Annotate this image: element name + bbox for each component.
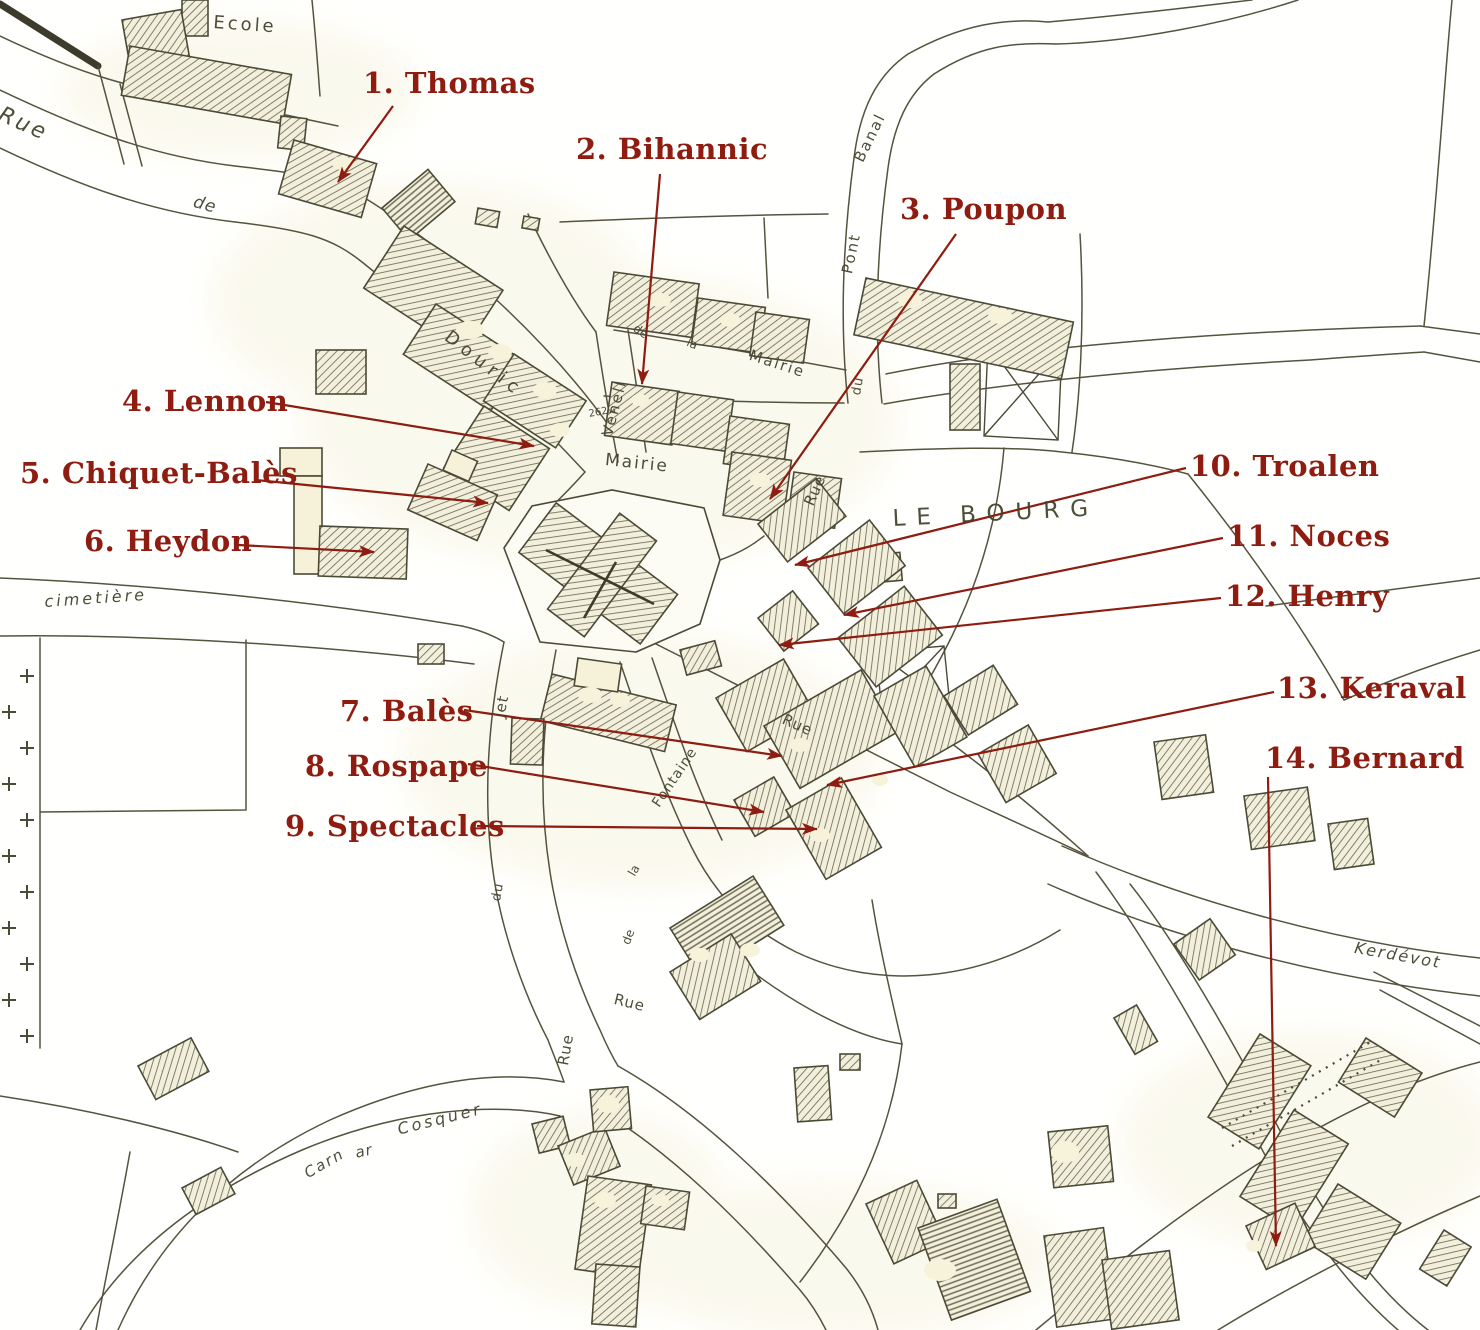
annotation-arrow-3 bbox=[770, 234, 956, 499]
annotation-arrow-13 bbox=[827, 692, 1274, 785]
annotation-arrow-6 bbox=[238, 545, 374, 552]
annotation-arrow-2 bbox=[642, 174, 660, 384]
annotation-arrows bbox=[0, 0, 1480, 1330]
annotation-arrow-4 bbox=[266, 402, 534, 446]
annotation-arrow-12 bbox=[779, 598, 1221, 645]
annotation-arrow-5 bbox=[256, 480, 488, 503]
annotation-arrow-1 bbox=[338, 106, 393, 182]
annotation-arrow-8 bbox=[468, 764, 764, 812]
annotation-arrow-7 bbox=[464, 710, 782, 756]
annotation-arrow-14 bbox=[1268, 777, 1276, 1246]
annotation-arrow-9 bbox=[477, 826, 817, 829]
annotation-arrow-10 bbox=[795, 468, 1186, 565]
map-stage: EcoleRuedeDouricVenelldelaMairieMairie26… bbox=[0, 0, 1480, 1330]
